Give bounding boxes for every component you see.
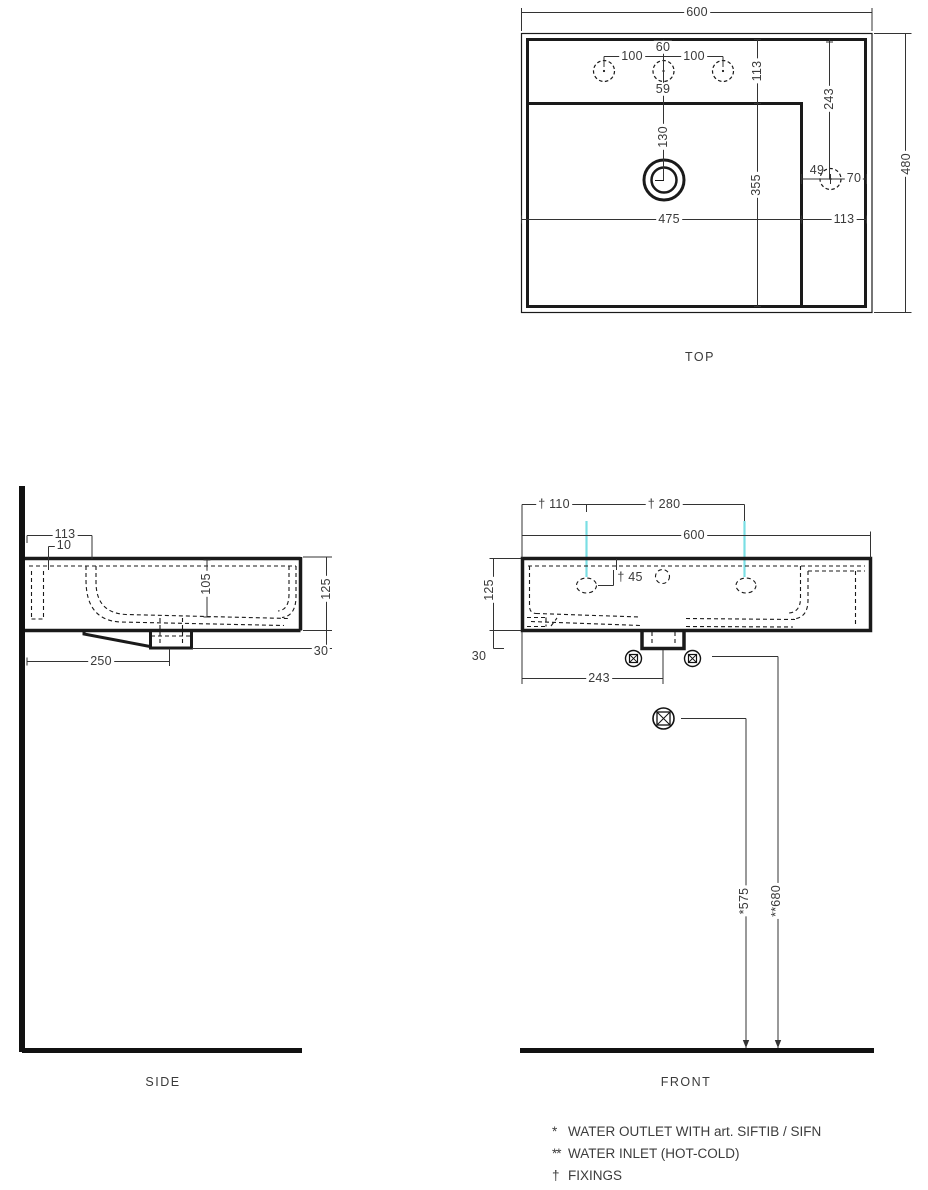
side-floor	[22, 1048, 302, 1053]
side-view	[19, 486, 332, 1053]
top-view-title: TOP	[685, 350, 715, 364]
front-floor	[520, 1048, 874, 1053]
dim-front-fixing-depth: † 45	[615, 571, 644, 584]
front-trap	[642, 631, 684, 649]
dim-front-drain-offset: 243	[586, 672, 612, 685]
side-wall	[19, 486, 25, 1052]
side-underside	[84, 631, 150, 647]
side-basin-outline	[25, 557, 301, 631]
dim-side-back-gap: 10	[55, 539, 73, 552]
dim-front-fixing-edge: † 110	[536, 498, 572, 511]
asterisk-symbol: *	[552, 1124, 568, 1139]
dim-top-overflow-left: 49	[808, 164, 826, 177]
dim-front-width: 600	[681, 529, 707, 542]
top-dimension-lines	[522, 8, 912, 313]
dim-side-height: 125	[320, 576, 333, 602]
dim-top-basin-width: 475	[656, 213, 682, 226]
front-view	[490, 505, 875, 1054]
dim-front-outlet-height: *575	[738, 886, 751, 917]
side-view-title: SIDE	[145, 1075, 180, 1089]
fixing-hole-right	[736, 578, 756, 593]
dim-top-drain-offset: 130	[657, 124, 670, 150]
drawing-canvas	[0, 0, 928, 1189]
dim-top-depth: 480	[900, 151, 913, 177]
side-trap	[151, 631, 192, 649]
dim-side-drain-offset: 250	[88, 655, 114, 668]
side-hidden-profile	[29, 566, 296, 645]
dim-top-deck: 113	[751, 59, 764, 84]
dim-front-fixing-spacing: † 280	[646, 498, 683, 511]
dim-top-deck-right: 113	[832, 213, 857, 226]
fixing-hole-left	[577, 578, 597, 593]
water-inlet-symbol-right	[685, 651, 701, 667]
dagger-symbol: †	[552, 1168, 568, 1183]
legend-water-outlet-text: WATER OUTLET WITH art. SIFTIB / SIFN	[568, 1124, 821, 1139]
front-view-title: FRONT	[661, 1075, 712, 1089]
legend: * WATER OUTLET WITH art. SIFTIB / SIFN *…	[552, 1124, 821, 1190]
dim-top-tap-basin: 59	[654, 83, 672, 96]
water-outlet-symbol	[653, 708, 674, 729]
dim-side-bowl-depth: 105	[200, 571, 213, 597]
side-dimension-lines	[27, 536, 332, 667]
dim-front-inlet-height: **680	[770, 883, 783, 919]
dim-front-height: 125	[483, 577, 496, 603]
front-tap-hole	[656, 570, 670, 584]
dim-front-trap-depth: 30	[470, 650, 488, 663]
dim-top-tap-spacing-left: 100	[619, 50, 645, 63]
dim-top-overflow-right: 70	[845, 172, 863, 185]
dim-top-width: 600	[684, 6, 710, 19]
dim-side-trap-depth: 30	[312, 645, 330, 658]
front-dimension-lines	[490, 505, 871, 1049]
top-view	[522, 8, 912, 313]
technical-drawing-page: { "colors": { "line": "#1a1a1a", "dim_li…	[0, 0, 928, 1189]
legend-water-outlet: * WATER OUTLET WITH art. SIFTIB / SIFN	[552, 1124, 821, 1146]
dim-top-tap-spacing-right: 100	[681, 50, 707, 63]
legend-water-inlet-text: WATER INLET (HOT-COLD)	[568, 1146, 740, 1161]
floor-arrowheads	[743, 1040, 781, 1048]
water-inlet-symbol-left	[626, 651, 642, 667]
front-basin-outline	[523, 559, 871, 631]
legend-fixings: † FIXINGS	[552, 1168, 821, 1190]
legend-water-inlet: ** WATER INLET (HOT-COLD)	[552, 1146, 821, 1168]
dim-top-basin-depth: 355	[750, 172, 763, 198]
dim-top-overflow-offset: 243	[823, 86, 836, 112]
dim-top-tap-edge: 60	[654, 41, 672, 54]
legend-fixings-text: FIXINGS	[568, 1168, 622, 1183]
front-hidden-profile	[527, 566, 865, 646]
double-asterisk-symbol: **	[552, 1146, 568, 1161]
